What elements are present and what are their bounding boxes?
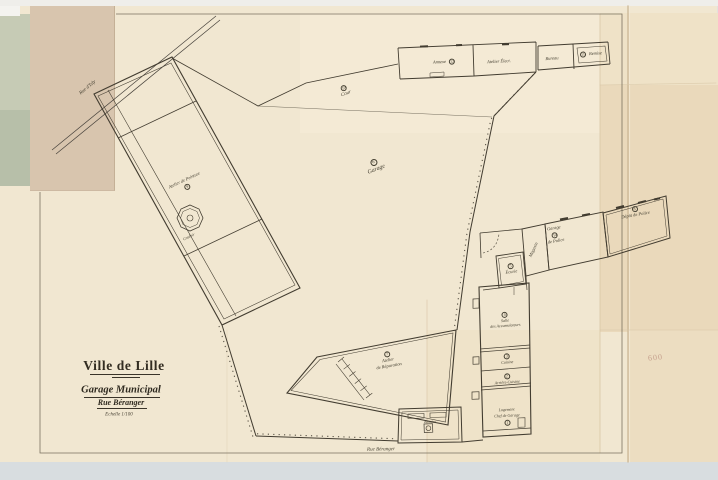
room-number-circle: 11 xyxy=(580,51,586,57)
door-leaf xyxy=(430,72,444,77)
rue-disly-road xyxy=(52,16,220,154)
east-boundary-wall xyxy=(454,72,536,331)
gate-swing-arc xyxy=(483,234,499,253)
room-number-circle: 1 xyxy=(504,420,510,426)
building-paint-shop xyxy=(94,57,300,325)
courtyard-walls xyxy=(172,58,492,117)
title-project: Garage Municipal xyxy=(81,384,161,395)
street-label-rue-beranger: Rue Béranger xyxy=(367,447,395,453)
room-label-ecurie: 5 Écurie xyxy=(504,262,518,275)
pencil-stamp: 600 xyxy=(648,352,664,363)
room-label-logement: Logement Chef de Garage 1 xyxy=(494,407,520,427)
title-city-underline-2 xyxy=(112,377,140,378)
hatching xyxy=(219,326,253,437)
room-label-salle-accumulateurs: 4 Salle des Accumulateurs xyxy=(489,311,520,329)
title-city-underline xyxy=(90,374,160,375)
title-scale: Echelle 1/100 xyxy=(105,412,133,417)
title-street: Rue Béranger xyxy=(98,399,144,407)
title-city: Ville de Lille xyxy=(83,359,164,373)
room-label-remise-bas: Remise xyxy=(424,420,436,424)
scanned-plan-page: Rue d'Isly Rue Béranger Atelier de Peint… xyxy=(0,0,718,480)
paper-creases xyxy=(227,6,718,462)
room-label-annexe: Annexe 12 xyxy=(433,58,456,65)
staircase xyxy=(336,357,372,400)
octagon-structure xyxy=(177,205,203,231)
room-label-bureau: Bureau xyxy=(545,56,558,62)
corridor-wall xyxy=(108,90,236,316)
room-label-cuisine: 3 Cuisine xyxy=(501,353,514,365)
hatching xyxy=(454,75,533,331)
remise-structure xyxy=(398,407,462,443)
room-number-circle: 12 xyxy=(449,58,455,64)
room-label-garage-police: Garage 14 de Police xyxy=(545,225,565,245)
room-label-arriere-cuisine: 2 Arrière-Cuisine xyxy=(494,373,520,386)
title-street-underline xyxy=(97,408,147,409)
